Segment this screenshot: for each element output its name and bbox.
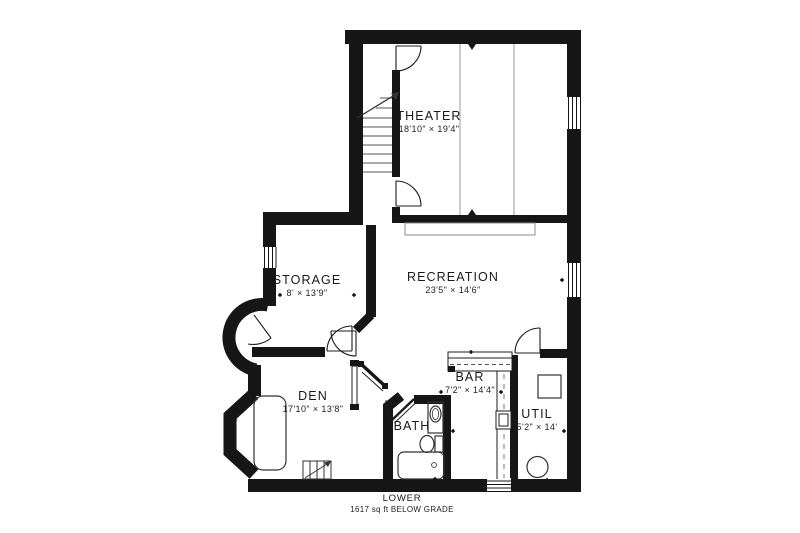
bar-sink	[496, 411, 511, 429]
wall-right-lower	[567, 297, 581, 492]
tick-theater-bottom	[468, 209, 476, 215]
room-dims: 18'10" × 19'4"	[396, 124, 461, 134]
door-util	[515, 328, 540, 353]
room-name: BAR	[445, 371, 495, 384]
tick-theater-top	[468, 44, 476, 50]
furnace	[538, 375, 561, 398]
water-heater	[527, 457, 548, 478]
door-storage	[327, 326, 352, 351]
wall-right-mid	[567, 129, 581, 263]
wall-turret-curve	[229, 304, 268, 370]
room-dims: 23'5" × 14'6"	[407, 285, 499, 295]
room-label-bar: BAR 7'2" × 14'4"	[445, 371, 495, 395]
door-theater-lower	[396, 181, 421, 206]
room-label-den: DEN 17'10" × 13'8"	[283, 390, 344, 414]
floor-plan-page: THEATER 18'10" × 19'4" RECREATION 23'5" …	[0, 0, 800, 533]
room-label-bath: BATH	[394, 420, 431, 433]
wall-theater-bottom	[392, 215, 580, 223]
wall-bath-chamfer	[386, 396, 401, 408]
wall-stair-right-stub	[392, 207, 400, 215]
wall-util-top-stub	[540, 349, 567, 358]
window-bottom-bar	[487, 478, 511, 493]
den-door-symbol	[350, 360, 388, 410]
room-name: STORAGE	[273, 274, 342, 287]
floor-area-label: 1617 sq ft BELOW GRADE	[350, 505, 454, 514]
wall-bottom-left	[248, 479, 487, 492]
door-theater-upper	[396, 46, 421, 71]
room-name: UTIL	[517, 408, 558, 421]
wall-storage-top	[263, 212, 363, 225]
floor-plan-drawing	[0, 0, 800, 533]
wall-bath-left	[383, 404, 393, 492]
room-dims: 7'2" × 14'4"	[445, 385, 495, 395]
theater-soffit	[405, 223, 535, 235]
room-label-theater: THEATER 18'10" × 19'4"	[396, 110, 461, 134]
stair-break-line	[357, 93, 398, 118]
wall-bottom-right	[510, 479, 581, 492]
wall-bay-window	[230, 394, 254, 474]
door-turret	[248, 315, 271, 344]
wall-left-upper	[263, 225, 276, 247]
wall-storage-bottom	[252, 347, 325, 357]
room-name: RECREATION	[407, 271, 499, 284]
toilet	[420, 436, 443, 453]
room-label-storage: STORAGE 8' × 13'9"	[273, 274, 342, 298]
window-storage-left	[262, 247, 277, 268]
window-recreation-right	[566, 263, 582, 297]
wall-storage-right	[366, 225, 376, 317]
bay-window-seat	[254, 396, 286, 470]
theater-lines	[405, 44, 535, 235]
room-name: THEATER	[396, 110, 461, 123]
wall-hall-diagonal	[356, 315, 371, 330]
room-dims: 17'10" × 13'8"	[283, 404, 344, 414]
floor-level-label: LOWER	[383, 493, 422, 504]
room-dims: 5'2" × 14'	[517, 422, 558, 432]
room-dims: 8' × 13'9"	[273, 288, 342, 298]
room-label-recreation: RECREATION 23'5" × 14'6"	[407, 271, 499, 295]
fireplace-steps	[303, 461, 331, 479]
room-label-util: UTIL 5'2" × 14'	[517, 408, 558, 432]
room-name: DEN	[283, 390, 344, 403]
wall-top	[345, 30, 581, 44]
wall-right-upper	[567, 30, 581, 97]
room-name: BATH	[394, 420, 431, 433]
wall-bath-bar	[443, 395, 451, 492]
bathtub	[398, 452, 444, 479]
window-theater-right	[566, 97, 582, 129]
wall-stair-left	[349, 30, 363, 225]
